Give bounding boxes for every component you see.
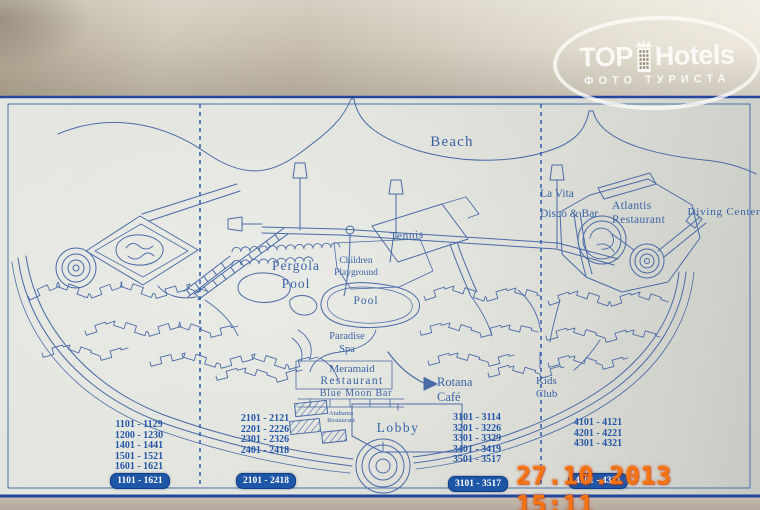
- label-paradise-spa: Paradise Spa: [329, 331, 365, 356]
- label-pergola-pool: Pergola Pool: [272, 257, 320, 293]
- label-la-vita-line1: La Vita: [540, 184, 598, 204]
- label-andiamo-restaurant: Andiamo Restaurant: [327, 410, 355, 424]
- room-range-badge-1: 1101 - 1621: [110, 473, 170, 489]
- room-range: 2101 - 2121: [200, 414, 330, 425]
- label-la-vita-line2: Disco & Bar: [540, 204, 598, 224]
- label-atlantis-line2: Restaurant: [612, 213, 665, 227]
- label-rotana-line1: Rotana: [437, 375, 472, 390]
- room-range: 2401 - 2418: [200, 446, 330, 457]
- watermark-subtitle: ФОТО ТУРИСТА: [584, 73, 731, 88]
- label-pergola-line1: Pergola: [272, 257, 320, 275]
- label-meramaid-line1: Meramaid: [320, 364, 383, 376]
- tower-crown-icon: [634, 40, 655, 72]
- label-atlantis-line1: Atlantis: [612, 199, 665, 213]
- watermark-top-text: TOP: [579, 43, 633, 71]
- room-range: 3101 - 3114: [412, 413, 542, 424]
- watermark-brand-row: TOP Hotels: [579, 39, 735, 74]
- label-meramaid-restaurant: Meramaid Restaurant: [320, 364, 383, 387]
- watermark-hotels-text: Hotels: [655, 41, 735, 69]
- label-children-playground: Children Playground: [334, 255, 378, 279]
- label-paradise-line2: Spa: [329, 344, 365, 357]
- room-range-list-3: 3101 - 3114 3201 - 3226 3301 - 3329 3401…: [412, 413, 542, 466]
- label-la-vita: La Vita Disco & Bar: [540, 184, 598, 224]
- label-andiamo-line1: Andiamo: [327, 410, 355, 417]
- room-range-badge-3: 3101 - 3517: [448, 476, 508, 492]
- label-children-line1: Children: [334, 255, 378, 267]
- room-range-list-4: 4101 - 4121 4201 - 4221 4301 - 4321: [533, 418, 663, 450]
- label-rotana-cafe: Rotana Café: [437, 375, 472, 404]
- resort-map-photo: Beach La Vita Disco & Bar Atlantis Resta…: [0, 0, 760, 510]
- label-blue-moon-bar: Blue Moon Bar: [320, 388, 393, 400]
- room-range-list-1: 1101 - 1129 1200 - 1230 1401 - 1441 1501…: [74, 420, 204, 473]
- label-kids-club: Kids Club: [536, 375, 557, 401]
- label-kids-club-line2: Club: [536, 388, 557, 401]
- label-children-line2: Playground: [334, 267, 378, 279]
- label-pergola-line2: Pool: [272, 275, 320, 293]
- room-range: 4301 - 4321: [533, 439, 663, 450]
- room-range-badge-2: 2101 - 2418: [236, 473, 296, 489]
- label-rotana-line2: Café: [437, 390, 472, 405]
- room-range-list-2: 2101 - 2121 2201 - 2226 2301 - 2326 2401…: [200, 414, 330, 456]
- label-atlantis-restaurant: Atlantis Restaurant: [612, 199, 665, 227]
- camera-timestamp: 27.10.2013 15:11: [516, 461, 760, 510]
- label-meramaid-line2: Restaurant: [320, 376, 383, 388]
- label-pool: Pool: [353, 295, 378, 309]
- room-range: 1601 - 1621: [74, 462, 204, 473]
- label-beach: Beach: [430, 133, 473, 151]
- room-range: 1101 - 1129: [74, 420, 204, 431]
- label-kids-club-line1: Kids: [536, 375, 557, 388]
- label-tennis: Tennis: [390, 229, 424, 245]
- label-paradise-line1: Paradise: [329, 331, 365, 344]
- label-andiamo-line2: Restaurant: [327, 417, 355, 424]
- label-diving-center: Diving Center: [687, 206, 760, 219]
- room-range: 4101 - 4121: [533, 418, 663, 429]
